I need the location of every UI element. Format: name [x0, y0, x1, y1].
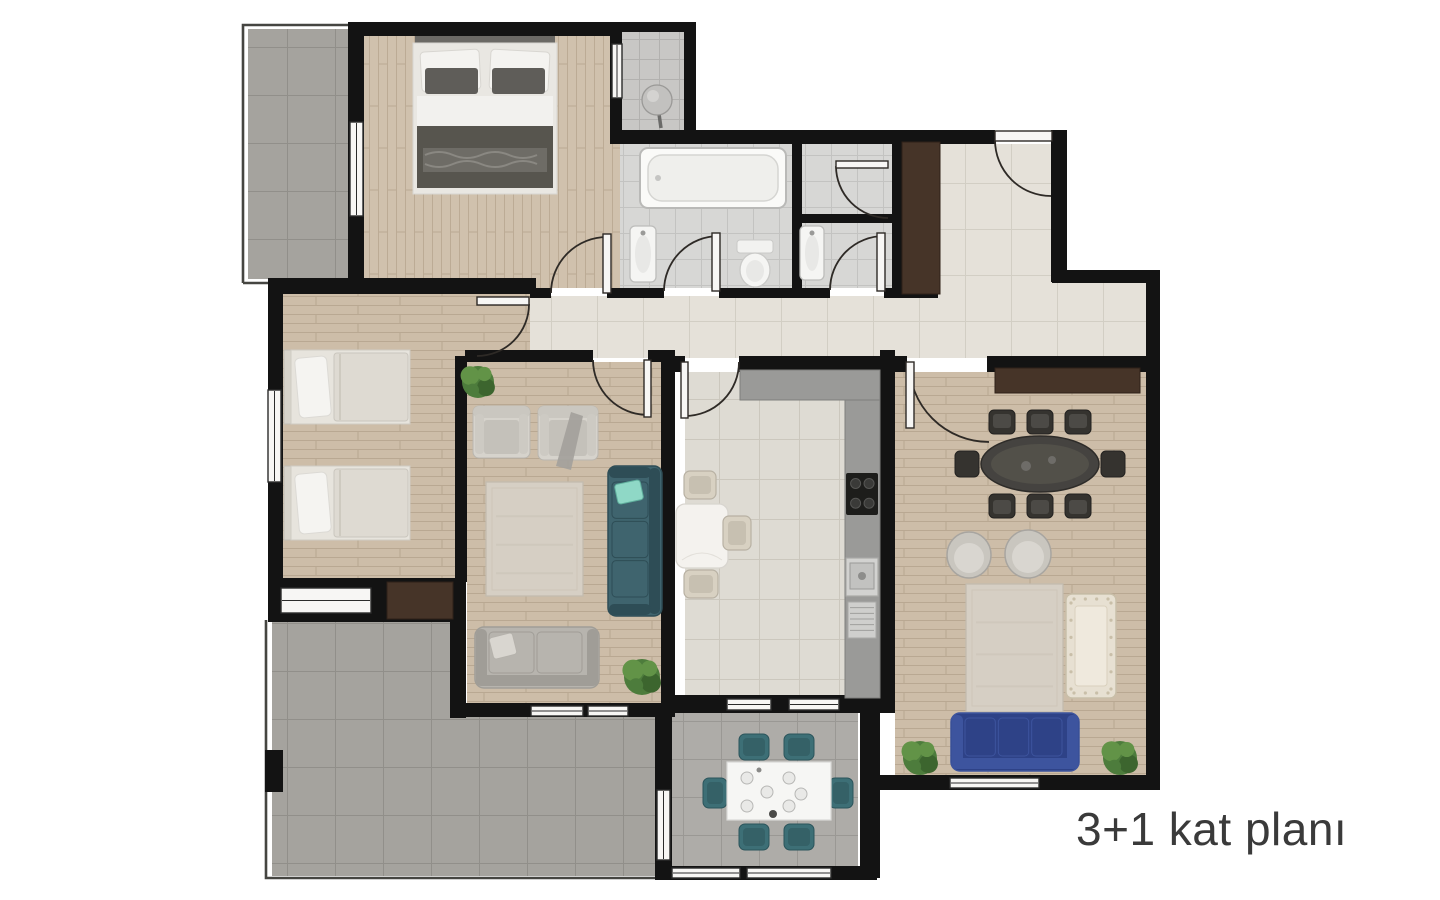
room-hall-lower — [938, 282, 1146, 358]
wall — [1146, 283, 1160, 790]
round-armchair — [947, 532, 991, 578]
room-balcony-top-left — [248, 29, 348, 279]
kitchen-table — [676, 504, 728, 568]
floor-plan-page: 3+1 kat planı — [0, 0, 1440, 900]
window — [268, 390, 281, 482]
wall — [607, 288, 664, 298]
plan-caption: 3+1 kat planı — [1076, 802, 1347, 856]
kitchen-chair — [723, 516, 751, 550]
sideboard — [995, 368, 1140, 393]
single-bed — [284, 466, 410, 540]
armchair — [473, 406, 530, 458]
cooktop — [846, 473, 878, 515]
kitchen-chair — [684, 471, 716, 499]
window — [350, 122, 363, 216]
wall — [798, 214, 894, 223]
teal-sofa — [608, 466, 662, 616]
kitchen-counter — [740, 370, 880, 400]
wall — [860, 708, 880, 878]
room-terrace-upper — [272, 622, 450, 876]
wall — [892, 140, 902, 292]
gray-sofa — [475, 627, 599, 688]
room-entry-hall — [938, 144, 1052, 282]
window — [588, 706, 628, 716]
window — [789, 699, 839, 710]
wall — [895, 356, 907, 372]
wall — [530, 288, 551, 298]
round-armchair — [1005, 530, 1051, 578]
window — [612, 44, 622, 98]
rug — [486, 482, 583, 596]
washbasin — [800, 226, 824, 280]
window — [727, 699, 771, 710]
room-shower — [802, 144, 892, 216]
wall — [684, 22, 696, 138]
washbasin — [630, 226, 656, 282]
floor-plan-drawing — [0, 0, 1440, 900]
wall — [265, 750, 283, 792]
armchair — [538, 406, 598, 470]
toilet — [737, 240, 773, 287]
window — [657, 790, 670, 860]
window — [747, 868, 831, 878]
kitchen-chair — [684, 570, 718, 598]
single-bed — [284, 350, 410, 424]
navy-sofa — [951, 713, 1079, 771]
wall — [661, 350, 675, 717]
bathtub — [640, 148, 786, 208]
cream-loveseat — [1066, 594, 1116, 698]
wall — [880, 350, 895, 712]
window — [531, 706, 583, 716]
wall — [1052, 270, 1160, 283]
room-terrace-lower — [450, 717, 655, 876]
wall — [1051, 130, 1067, 282]
kitchen-counter — [845, 400, 880, 698]
bedroom-closet — [387, 582, 453, 619]
window — [281, 588, 371, 613]
room-niche — [622, 30, 686, 134]
double-bed — [413, 36, 557, 194]
rug — [966, 584, 1063, 712]
wall — [348, 22, 622, 36]
room-corridor — [530, 296, 946, 358]
wall — [719, 288, 830, 298]
wall — [610, 22, 694, 32]
hall-closet — [902, 142, 940, 294]
window — [672, 868, 740, 878]
wall — [268, 278, 536, 294]
window — [950, 778, 1039, 788]
